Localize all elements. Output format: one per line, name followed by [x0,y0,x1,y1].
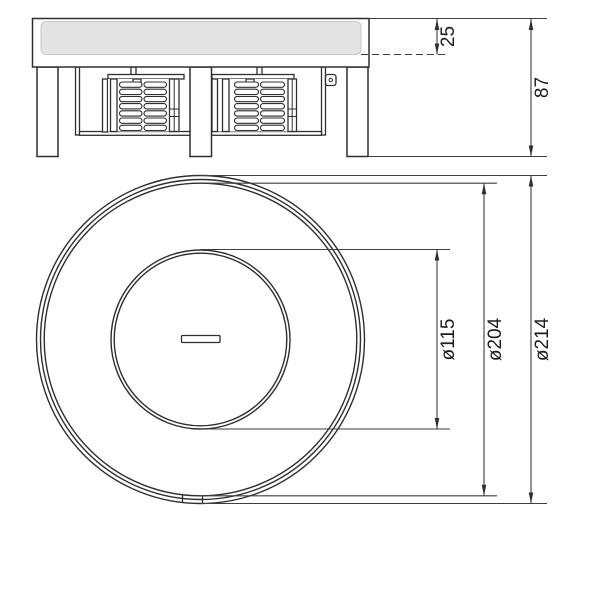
terminal-block-right [212,75,297,132]
block-left-bar [111,79,118,132]
dim-label-o204: ø204 [485,317,506,361]
dimension-outer-diameter: ø214 [529,176,553,504]
dim-label-25: 25 [438,26,459,47]
technical-drawing-canvas: 25 87 ø115 ø204 [0,0,600,600]
cover-screw-slot [182,336,221,343]
side-view [33,19,370,157]
dim-label-87: 87 [532,77,553,98]
technical-drawing-page: 25 87 ø115 ø204 [0,0,600,600]
leg-right [347,67,368,157]
cover-plate [41,22,361,55]
block-end-strip [103,79,108,132]
dimension-recess-depth: 25 [435,19,459,55]
dimension-cover-diameter: ø204 [482,183,506,496]
fixing-clip [326,75,337,86]
dimension-inner-diameter: ø115 [435,250,459,430]
block-top-rail [212,75,294,80]
left-rail [76,67,80,135]
dim-label-o214: ø214 [532,317,553,361]
terminal-block-left [103,75,185,133]
block-left-bar [212,79,218,132]
top-view [37,176,365,504]
block-second-bar [223,79,230,132]
dim-label-o115: ø115 [438,319,459,361]
leg-middle [190,67,212,157]
block-top-rail [108,75,184,80]
leg-left [37,67,58,157]
dimension-overall-height: 87 [529,19,553,157]
